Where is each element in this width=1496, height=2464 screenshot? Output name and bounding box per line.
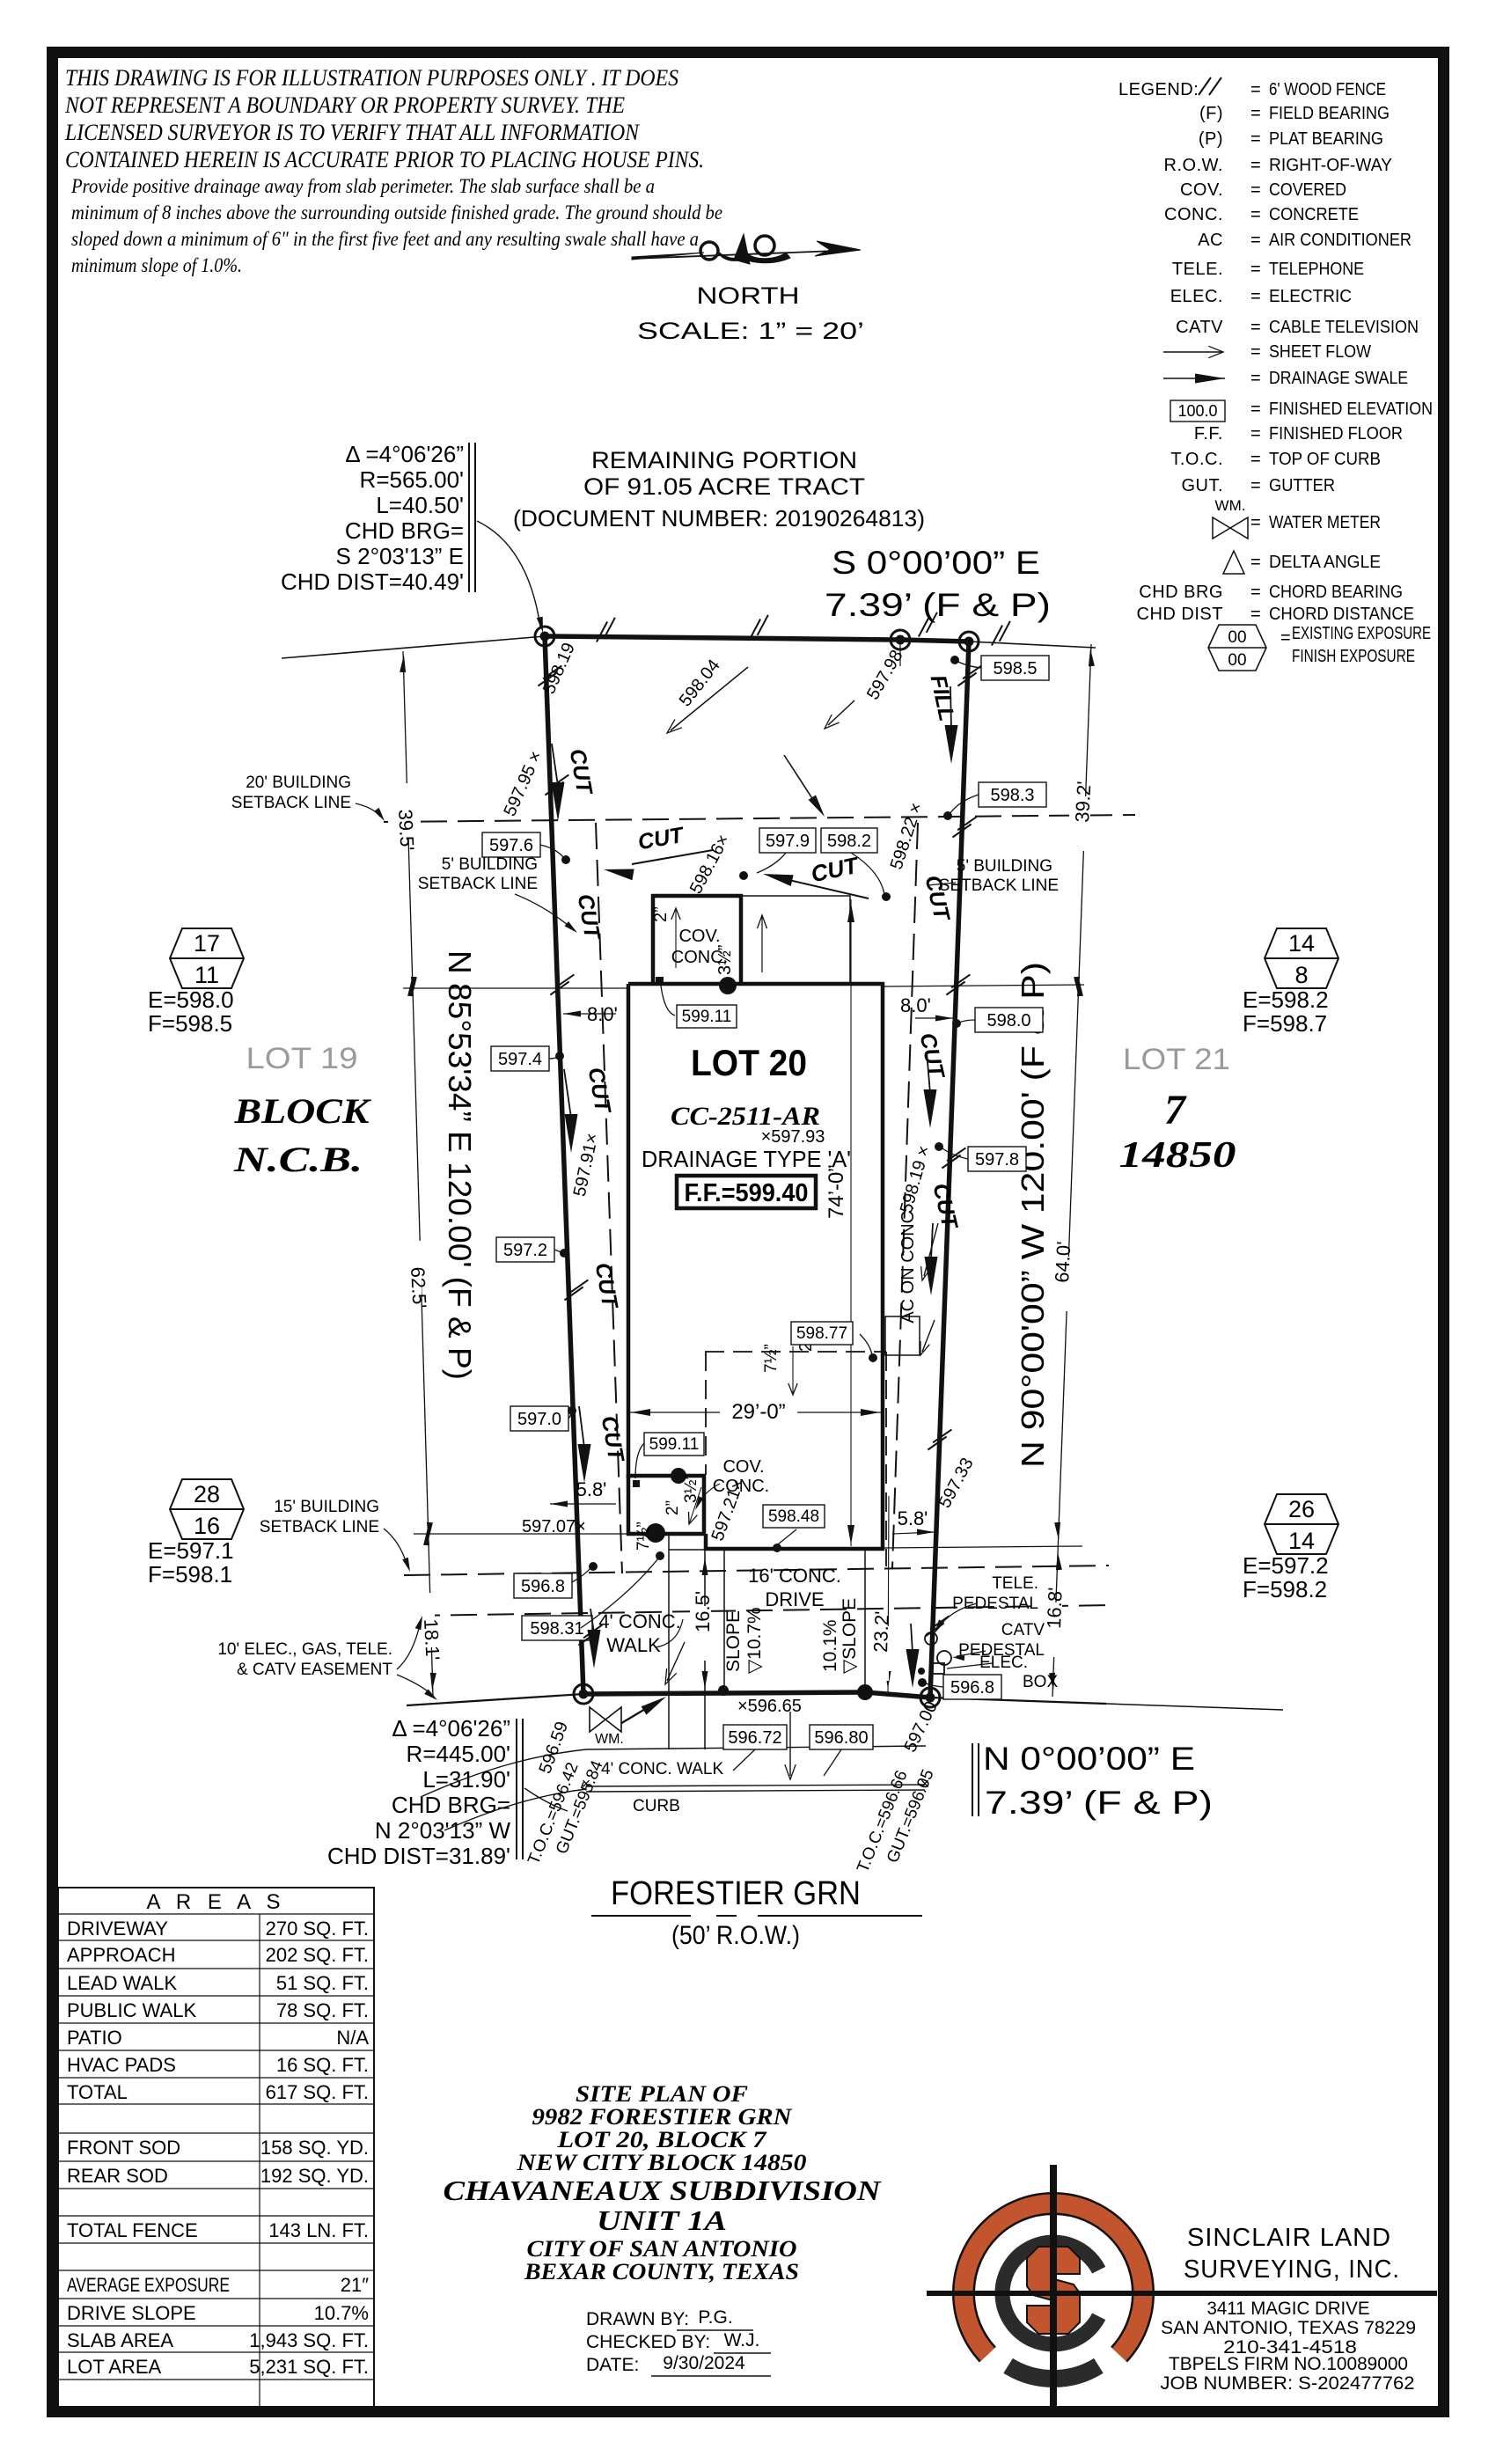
svg-text:LOT 20: LOT 20 [691,1042,807,1083]
svg-text:minimum of 8 inches above the: minimum of 8 inches above the surroundin… [71,202,722,224]
svg-text:=: = [1250,180,1261,200]
svg-text:=: = [1250,513,1261,532]
svg-text:(DOCUMENT NUMBER: 20190264813): (DOCUMENT NUMBER: 20190264813) [513,505,925,532]
svg-text:=: = [1250,583,1261,602]
svg-text:& CATV EASEMENT: & CATV EASEMENT [237,1661,392,1679]
svg-text:AC ON CONC.: AC ON CONC. [898,1206,918,1323]
svg-text:143 LN. FT.: 143 LN. FT. [268,2219,369,2241]
svg-text:SITE PLAN OF: SITE PLAN OF [576,2081,748,2107]
svg-text:TELE.: TELE. [1172,260,1223,279]
svg-text:FINISH EXPOSURE: FINISH EXPOSURE [1292,647,1415,666]
svg-text:17: 17 [194,930,220,957]
svg-text:WALK: WALK [606,1634,661,1656]
svg-text:62.5': 62.5' [407,1266,430,1309]
svg-text:10.1%: 10.1% [820,1619,840,1672]
svg-text:=: = [1250,400,1261,419]
svg-text:=: = [1250,260,1261,279]
svg-text:CABLE TELEVISION: CABLE TELEVISION [1269,318,1419,337]
svg-text:=: = [1250,424,1261,444]
svg-text:TOP OF CURB: TOP OF CURB [1269,450,1381,469]
svg-text:39.5': 39.5' [394,809,418,851]
svg-text:597.0: 597.0 [517,1410,561,1429]
svg-text:=: = [1250,553,1261,572]
svg-text:21″: 21″ [341,2274,369,2296]
svg-text:11: 11 [194,962,219,988]
svg-text:26: 26 [1288,1496,1315,1522]
svg-text:=: = [1280,628,1291,648]
svg-text:598.77: 598.77 [796,1324,847,1343]
svg-text:16' CONC.: 16' CONC. [748,1565,841,1587]
svg-text:F=598.2: F=598.2 [1243,1576,1327,1602]
svg-text:AVERAGE EXPOSURE: AVERAGE EXPOSURE [67,2274,230,2296]
svg-text:SAN ANTONIO, TEXAS 78229: SAN ANTONIO, TEXAS 78229 [1161,2318,1416,2338]
svg-text:=: = [1250,80,1261,99]
svg-text:5' BUILDING: 5' BUILDING [957,857,1052,876]
svg-text:PUBLIC WALK: PUBLIC WALK [67,1999,196,2021]
svg-text:COV.: COV. [678,927,720,946]
svg-text:9/30/2024: 9/30/2024 [663,2353,745,2373]
svg-text:Δ =4°06'26”: Δ =4°06'26” [345,441,464,467]
svg-text:UNIT 1A: UNIT 1A [597,2204,727,2236]
svg-text:EXISTING EXPOSURE: EXISTING EXPOSURE [1292,624,1431,643]
svg-text:598.31: 598.31 [530,1619,583,1639]
svg-text:2”: 2” [651,906,671,922]
svg-text:=: = [1250,476,1261,495]
svg-text:158 SQ. YD.: 158 SQ. YD. [260,2137,369,2159]
svg-text:COV.: COV. [1180,180,1223,200]
svg-text:CHD DIST=31.89': CHD DIST=31.89' [327,1843,510,1869]
svg-text:=: = [1250,318,1261,337]
svg-text:597.4: 597.4 [498,1050,542,1069]
svg-text:NORTH: NORTH [697,282,800,309]
svg-text:SLAB AREA: SLAB AREA [67,2329,173,2351]
svg-text:LEGEND:: LEGEND: [1118,80,1199,99]
svg-text:9982 FORESTIER GRN: 9982 FORESTIER GRN [532,2104,793,2130]
svg-text:S 2°03'13” E: S 2°03'13” E [336,543,464,569]
svg-text:FINISHED FLOOR: FINISHED FLOOR [1269,424,1403,444]
svg-text:WATER METER: WATER METER [1269,513,1381,532]
svg-text:28: 28 [194,1481,220,1507]
svg-text:CHD BRG=: CHD BRG= [392,1792,510,1818]
svg-text:GUT.: GUT. [1181,476,1223,495]
svg-text:598.48: 598.48 [768,1507,819,1526]
svg-text:DRIVE: DRIVE [765,1588,824,1610]
svg-text:7.39’ (F & P): 7.39’ (F & P) [825,587,1051,623]
svg-text:599.11: 599.11 [682,1008,732,1026]
svg-text:F=598.1: F=598.1 [148,1561,232,1588]
svg-text:AIR CONDITIONER: AIR CONDITIONER [1269,231,1412,250]
svg-text:SHEET FLOW: SHEET FLOW [1269,342,1371,362]
svg-text:599.11: 599.11 [649,1435,700,1454]
svg-text:LOT 19: LOT 19 [246,1042,358,1075]
svg-text:CHD BRG=: CHD BRG= [345,517,464,544]
svg-text:23.2': 23.2' [869,1610,893,1653]
svg-text:DELTA ANGLE: DELTA ANGLE [1269,553,1381,572]
svg-text:598.2: 598.2 [827,832,871,851]
svg-text:PEDESTAL: PEDESTAL [952,1595,1038,1613]
svg-text:2”: 2” [664,1500,682,1515]
svg-text:CONCRETE: CONCRETE [1269,205,1359,224]
svg-text:NEW CITY BLOCK 14850: NEW CITY BLOCK 14850 [516,2150,806,2175]
svg-text:R.O.W.: R.O.W. [1164,156,1223,175]
svg-text:COVERED: COVERED [1269,180,1346,200]
svg-text:BLOCK: BLOCK [233,1091,371,1131]
svg-text:TELE.: TELE. [992,1574,1038,1593]
svg-text:FRONT SOD: FRONT SOD [67,2137,180,2159]
svg-text:3411 MAGIC DRIVE: 3411 MAGIC DRIVE [1207,2299,1370,2319]
svg-text:596.72: 596.72 [728,1728,781,1748]
svg-text:CURB: CURB [633,1797,680,1815]
svg-text:E=597.1: E=597.1 [148,1537,234,1564]
svg-text:T.O.C.: T.O.C. [1170,450,1223,469]
svg-text:TBPELS FIRM NO.10089000: TBPELS FIRM NO.10089000 [1169,2354,1408,2374]
svg-text:FIELD BEARING: FIELD BEARING [1269,104,1390,123]
svg-text:GUTTER: GUTTER [1269,476,1335,495]
svg-text:OF 91.05 ACRE TRACT: OF 91.05 ACRE TRACT [583,473,865,500]
svg-text:RIGHT-OF-WAY: RIGHT-OF-WAY [1269,156,1392,175]
svg-text:LOT AREA: LOT AREA [67,2356,162,2378]
svg-text:1,943 SQ. FT.: 1,943 SQ. FT. [249,2329,369,2351]
svg-text:R=565.00': R=565.00' [360,466,464,493]
svg-text:596.80: 596.80 [814,1728,868,1748]
svg-text:64.0': 64.0' [1051,1241,1074,1283]
svg-text:SINCLAIR LAND: SINCLAIR LAND [1187,2224,1391,2252]
svg-text:CHECKED BY:: CHECKED BY: [586,2332,710,2352]
svg-text:F.F.=599.40: F.F.=599.40 [685,1179,809,1207]
svg-text:598.5: 598.5 [993,659,1037,678]
svg-text:TOTAL: TOTAL [67,2081,128,2103]
svg-text:P.G.: P.G. [698,2307,732,2328]
svg-text:5' BUILDING: 5' BUILDING [442,855,538,874]
svg-text:CHORD BEARING: CHORD BEARING [1269,583,1403,602]
svg-text:W.J.: W.J. [724,2330,760,2350]
svg-text:14: 14 [1288,930,1315,957]
svg-text:(F): (F) [1199,104,1223,123]
svg-text:N 0°00’00” E: N 0°00’00” E [983,1741,1195,1777]
svg-text:N 85°53'34” E 120.00' (F & P): N 85°53'34” E 120.00' (F & P) [442,950,478,1380]
svg-text:270 SQ. FT.: 270 SQ. FT. [266,1918,369,1940]
svg-text:S 0°00’00” E: S 0°00’00” E [832,545,1040,581]
svg-text:A R E A S: A R E A S [146,1890,285,1914]
svg-text:BEXAR COUNTY, TEXAS: BEXAR COUNTY, TEXAS [524,2259,799,2284]
svg-text:5,231 SQ. FT.: 5,231 SQ. FT. [249,2356,369,2378]
svg-text:N.C.B.: N.C.B. [233,1140,363,1179]
svg-text:CATV: CATV [1176,318,1223,337]
svg-text:596.8: 596.8 [950,1678,994,1698]
svg-text:16.5': 16.5' [692,1591,714,1632]
svg-text:596.8: 596.8 [521,1577,565,1596]
svg-text:DRAINAGE SWALE: DRAINAGE SWALE [1269,369,1408,388]
svg-text:5.8': 5.8' [576,1478,607,1500]
svg-text:74’-0”: 74’-0” [825,1165,848,1219]
svg-text:SURVEYING, INC.: SURVEYING, INC. [1184,2255,1400,2284]
svg-text:N/A: N/A [336,2027,369,2049]
svg-text:=: = [1250,369,1261,388]
svg-text:sloped down a minimum of 6" in: sloped down a minimum of 6" in the first… [71,228,699,250]
svg-text:LOT 20, BLOCK 7: LOT 20, BLOCK 7 [556,2127,766,2152]
svg-text:=: = [1250,205,1261,224]
svg-text:N 2°03'13” W: N 2°03'13” W [375,1817,511,1844]
svg-text:CHD DIST=40.49': CHD DIST=40.49' [281,568,464,595]
svg-text:00: 00 [1228,628,1246,647]
svg-text:597.6: 597.6 [489,836,533,855]
svg-text:REAR SOD: REAR SOD [67,2165,168,2187]
svg-text:597.9: 597.9 [766,832,810,851]
svg-text:Δ =4°06'26”: Δ =4°06'26” [392,1715,510,1742]
svg-text:100.0: 100.0 [1177,402,1217,420]
svg-text:14850: 14850 [1119,1135,1236,1176]
svg-text:=: = [1250,156,1261,175]
svg-text:TELEPHONE: TELEPHONE [1269,260,1364,279]
svg-text:29’-0”: 29’-0” [731,1400,785,1424]
svg-text:E=597.2: E=597.2 [1243,1552,1329,1579]
svg-text:=: = [1250,287,1261,306]
svg-text:FORESTIER GRN: FORESTIER GRN [611,1875,861,1912]
svg-text:ELEC.: ELEC. [979,1654,1028,1672]
svg-text:=: = [1250,231,1261,250]
svg-text:HVAC PADS: HVAC PADS [67,2054,176,2076]
svg-text:FINISHED ELEVATION: FINISHED ELEVATION [1269,400,1433,419]
svg-text:202 SQ. FT.: 202 SQ. FT. [266,1944,369,1966]
svg-text:L=40.50': L=40.50' [376,492,464,518]
svg-text:8.0': 8.0' [900,994,931,1016]
svg-text:7: 7 [1164,1087,1187,1133]
svg-text:597.07×: 597.07× [522,1517,586,1536]
svg-text:▽SLOPE: ▽SLOPE [840,1598,860,1674]
svg-text:E=598.0: E=598.0 [148,986,234,1013]
svg-text:CATV: CATV [1001,1621,1045,1639]
svg-text:7½”: 7½” [762,1344,781,1373]
svg-text:R=445.00': R=445.00' [407,1741,510,1767]
svg-text:16.8': 16.8' [1043,1587,1067,1629]
svg-text:7½”: 7½” [634,1522,653,1551]
svg-text:L=31.90': L=31.90' [422,1766,510,1793]
svg-text:DRAINAGE TYPE 'A': DRAINAGE TYPE 'A' [642,1146,851,1172]
svg-text:F.F.: F.F. [1194,424,1223,444]
svg-text:00: 00 [1228,651,1246,670]
svg-text:CHAVANEAUX SUBDIVISION: CHAVANEAUX SUBDIVISION [444,2174,883,2206]
svg-text:598.0: 598.0 [986,1011,1030,1030]
svg-text:PLAT BEARING: PLAT BEARING [1269,129,1383,149]
svg-text:ELEC.: ELEC. [1170,287,1223,306]
svg-text:=: = [1250,129,1261,149]
svg-text:51 SQ. FT.: 51 SQ. FT. [276,1972,369,1994]
svg-text:8.0': 8.0' [587,1003,618,1025]
svg-text:8: 8 [1294,962,1308,988]
svg-text:▽10.7%: ▽10.7% [744,1607,765,1674]
svg-text:CONTAINED HEREIN IS ACCURATE P: CONTAINED HEREIN IS ACCURATE PRIOR TO PL… [65,147,704,172]
svg-text:CHORD DISTANCE: CHORD DISTANCE [1269,605,1414,624]
svg-text:597.8: 597.8 [975,1150,1019,1170]
svg-text:78 SQ. FT.: 78 SQ. FT. [276,1999,369,2021]
svg-text:×597.93: ×597.93 [761,1127,825,1147]
svg-text:SLOPE: SLOPE [723,1610,744,1672]
svg-text:LOT 21: LOT 21 [1123,1043,1230,1076]
svg-text:LEAD WALK: LEAD WALK [67,1972,177,1994]
svg-text:CHD BRG: CHD BRG [1139,583,1223,602]
svg-text:16: 16 [194,1513,220,1539]
svg-text:DRIVEWAY: DRIVEWAY [67,1918,168,1940]
svg-text:SETBACK LINE: SETBACK LINE [418,875,538,893]
svg-text:(P): (P) [1199,129,1223,149]
svg-text:JOB NUMBER: S-202477762: JOB NUMBER: S-202477762 [1161,2373,1415,2394]
svg-text:4' CONC.: 4' CONC. [598,1610,680,1632]
svg-text:REMAINING PORTION: REMAINING PORTION [591,447,857,473]
svg-text:14: 14 [1288,1528,1315,1554]
svg-text:5.8': 5.8' [898,1507,928,1529]
svg-text:LICENSED SURVEYOR IS TO VERIFY: LICENSED SURVEYOR IS TO VERIFY THAT ALL … [64,120,640,145]
svg-text:PATIO: PATIO [67,2027,122,2049]
svg-text:ELECTRIC: ELECTRIC [1269,287,1352,306]
svg-text:16 SQ. FT.: 16 SQ. FT. [276,2054,369,2076]
svg-text:SETBACK LINE: SETBACK LINE [939,876,1059,895]
svg-text:F=598.7: F=598.7 [1243,1010,1327,1037]
svg-text:APPROACH: APPROACH [67,1944,175,1966]
svg-text:3½”: 3½” [715,945,735,975]
svg-text:Provide positive drainage away: Provide positive drainage away from slab… [70,175,655,197]
svg-text:6' WOOD FENCE: 6' WOOD FENCE [1269,80,1386,99]
svg-text:THIS DRAWING IS FOR ILLUSTRATI: THIS DRAWING IS FOR ILLUSTRATION PURPOSE… [65,65,678,91]
svg-text:18.1': 18.1' [420,1618,444,1661]
svg-text:TOTAL FENCE: TOTAL FENCE [67,2219,198,2241]
svg-text:192 SQ. YD.: 192 SQ. YD. [260,2165,369,2187]
svg-text:15' BUILDING: 15' BUILDING [274,1498,379,1516]
svg-text:WM.: WM. [1215,497,1246,514]
svg-text:598.3: 598.3 [990,786,1034,805]
svg-text:E=598.2: E=598.2 [1243,986,1329,1013]
svg-text:617 SQ. FT.: 617 SQ. FT. [266,2081,369,2103]
svg-text:SETBACK LINE: SETBACK LINE [260,1518,379,1536]
svg-text:7.39’ (F & P): 7.39’ (F & P) [985,1785,1213,1821]
svg-text:NOT REPRESENT A BOUNDARY OR PR: NOT REPRESENT A BOUNDARY OR PROPERTY SUR… [64,92,625,118]
svg-text:(50’ R.O.W.): (50’ R.O.W.) [671,1921,800,1950]
svg-text:×596.65: ×596.65 [737,1697,802,1716]
svg-text:10.7%: 10.7% [314,2302,369,2324]
svg-text:AC: AC [1198,231,1223,250]
svg-text:=: = [1250,104,1261,123]
svg-text:SETBACK LINE: SETBACK LINE [231,794,351,812]
svg-text:597.2: 597.2 [503,1241,547,1260]
svg-text:CHD DIST: CHD DIST [1137,605,1223,624]
svg-text:DRIVE SLOPE: DRIVE SLOPE [67,2302,196,2324]
svg-text:39.2': 39.2' [1071,781,1095,823]
svg-text:WM.: WM. [595,1732,624,1747]
svg-text:CONC.: CONC. [1164,205,1223,224]
svg-text:=: = [1250,450,1261,469]
svg-text:F=598.5: F=598.5 [148,1010,232,1037]
svg-text:DATE:: DATE: [586,2355,639,2375]
svg-text:10' ELEC., GAS, TELE.: 10' ELEC., GAS, TELE. [217,1640,392,1659]
svg-text:=: = [1250,342,1261,362]
svg-text:=: = [1250,605,1261,624]
svg-text:BOX: BOX [1023,1673,1058,1691]
svg-text:4' CONC. WALK: 4' CONC. WALK [601,1760,723,1778]
svg-text:N 90°00'00” W 120.00' (F & P): N 90°00'00” W 120.00' (F & P) [1015,962,1051,1468]
svg-text:CITY OF SAN ANTONIO: CITY OF SAN ANTONIO [527,2236,797,2262]
svg-text:SCALE: 1” = 20’: SCALE: 1” = 20’ [637,318,864,344]
svg-text:DRAWN BY:: DRAWN BY: [586,2309,689,2329]
svg-text:20' BUILDING: 20' BUILDING [246,774,351,792]
svg-text:COV.: COV. [722,1457,764,1477]
svg-text:minimum slope of 1.0%.: minimum slope of 1.0%. [71,254,242,276]
